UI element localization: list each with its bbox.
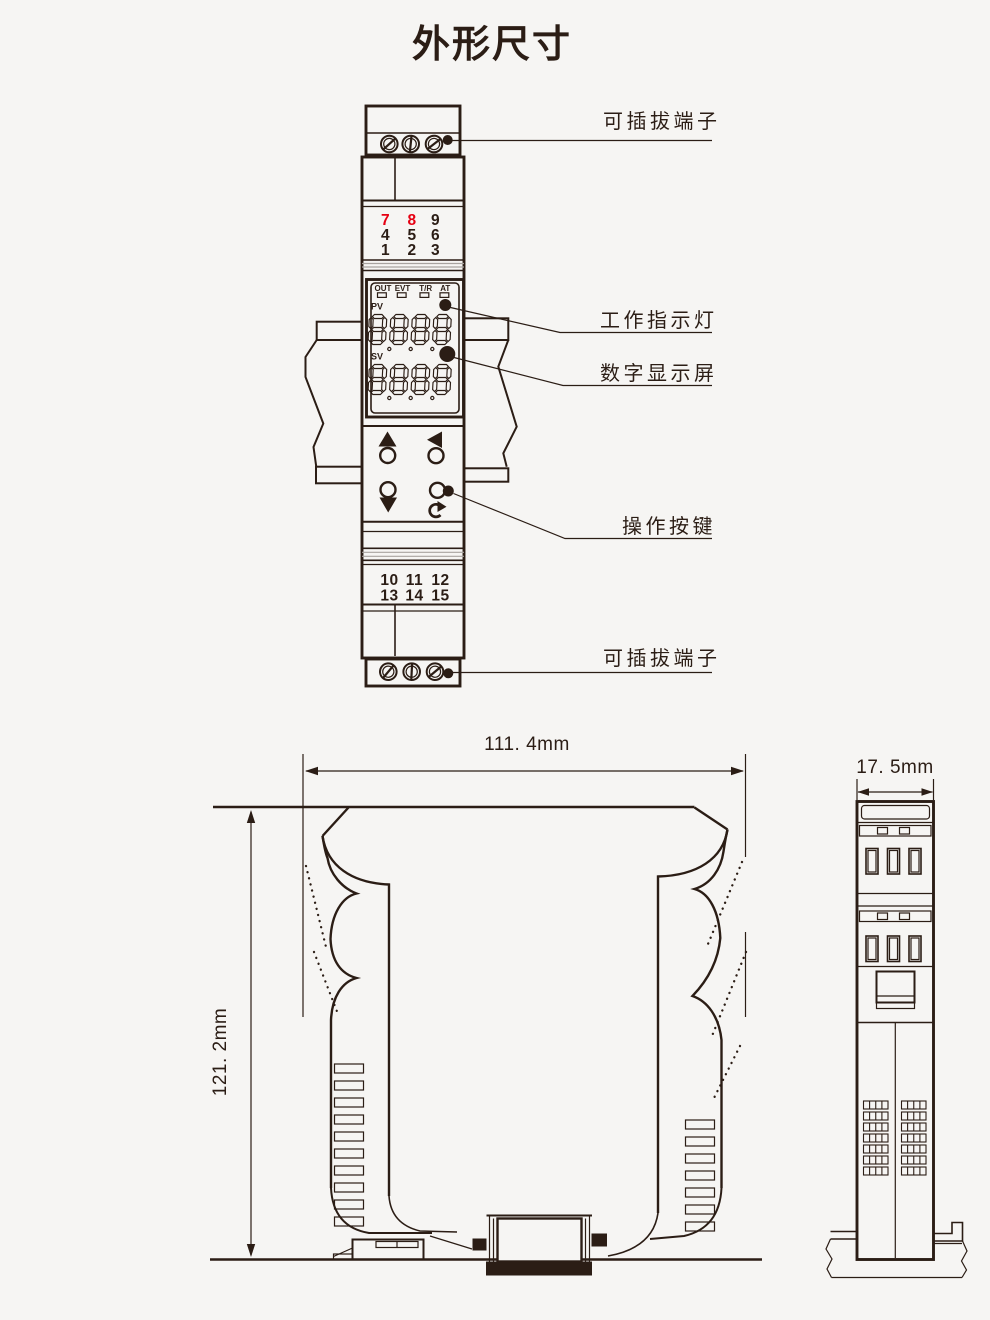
page-title: 外形尺寸	[412, 24, 572, 66]
callout-indicator: 工作指示灯	[451, 308, 718, 333]
callout-dot-buttons	[443, 486, 454, 497]
side-body	[857, 802, 934, 1260]
indicator-label: EVT	[395, 284, 411, 293]
callout-label: 可插拔端子	[603, 647, 721, 670]
terminal-number: 11	[406, 572, 423, 589]
depth-dimension: 17. 5mm	[856, 757, 933, 800]
callout-display: 数字显示屏	[454, 358, 718, 386]
front-view-figure: 7 8 9 4 5 6 1 2 3 OUT EVT T/R	[306, 106, 721, 686]
pv-label: PV	[371, 302, 383, 312]
arrowhead-left	[305, 767, 318, 775]
terminal-number: 13	[380, 588, 398, 605]
terminal-number: 2	[407, 242, 416, 259]
din-clip	[473, 1216, 608, 1276]
indicator-label: AT	[440, 284, 450, 293]
din-rail-left	[306, 322, 365, 484]
arrowhead-right	[922, 788, 934, 795]
rail-latch	[334, 1236, 473, 1260]
callout-label: 数字显示屏	[600, 362, 718, 385]
callout-dot	[443, 135, 453, 145]
callout-terminal-bottom: 可插拔端子	[443, 647, 720, 678]
terminal-number: 3	[431, 242, 440, 259]
side-view-figure: 17. 5mm	[826, 757, 967, 1278]
screw-terminal	[403, 663, 420, 680]
callout-dot	[443, 668, 453, 678]
height-dimension: 121. 2mm	[210, 810, 255, 1257]
callout-label: 可插拔端子	[603, 110, 721, 133]
terminal-number: 15	[431, 588, 449, 605]
terminal-number: 14	[405, 588, 423, 605]
top-terminal-numbers: 7 8 9 4 5 6 1 2 3	[381, 212, 440, 259]
terminal-number: 10	[380, 572, 398, 589]
callout-dot-display	[439, 346, 455, 362]
device-body: 7 8 9 4 5 6 1 2 3 OUT EVT T/R	[362, 157, 464, 658]
top-view-figure: 111. 4mm 121. 2mm	[210, 734, 762, 1276]
vent-slots-right	[686, 1120, 715, 1231]
callout-buttons: 操作按键	[454, 494, 717, 539]
arrowhead-down	[247, 1244, 255, 1257]
callout-label: 工作指示灯	[600, 309, 718, 332]
terminal-number: 12	[431, 572, 449, 589]
arrowhead-right	[731, 767, 744, 775]
dotted-guides	[306, 862, 746, 1098]
din-rail-right	[463, 318, 516, 481]
sv-label: SV	[371, 352, 383, 362]
depth-dimension-label: 17. 5mm	[856, 757, 933, 778]
vent-slots-left	[335, 1064, 364, 1226]
arrowhead-up	[247, 810, 255, 823]
terminal-number: 1	[381, 242, 390, 259]
arrowhead-left	[858, 788, 870, 795]
callout-label: 操作按键	[622, 515, 716, 538]
callout-dot-indicator	[439, 299, 451, 311]
outline-dimensions-diagram: 外形尺寸 7	[0, 0, 990, 1320]
width-dimension: 111. 4mm	[303, 734, 746, 1017]
enclosure-outline	[323, 808, 728, 1257]
height-dimension-label: 121. 2mm	[210, 1008, 231, 1096]
width-dimension-label: 111. 4mm	[484, 734, 570, 755]
indicator-label: T/R	[419, 284, 432, 293]
top-terminal-cap	[366, 106, 460, 156]
indicator-label: OUT	[375, 284, 392, 293]
callout-terminal-top: 可插拔端子	[443, 110, 721, 145]
bottom-terminal-numbers: 10 11 12 13 14 15	[380, 572, 449, 605]
